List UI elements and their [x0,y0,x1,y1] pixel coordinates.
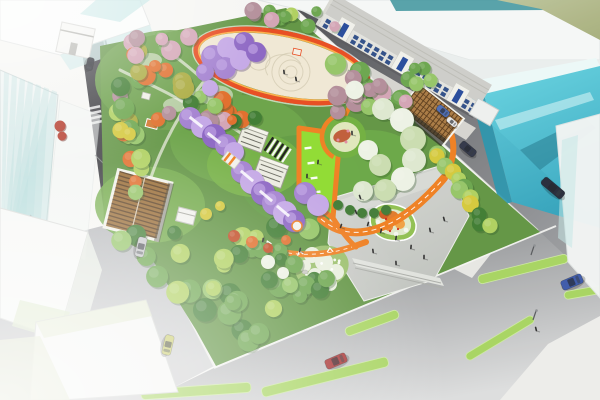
rect-shape [0,0,600,400]
light-overlay [0,0,600,400]
render-canvas [0,0,600,400]
park-aerial-rendering [0,0,600,400]
